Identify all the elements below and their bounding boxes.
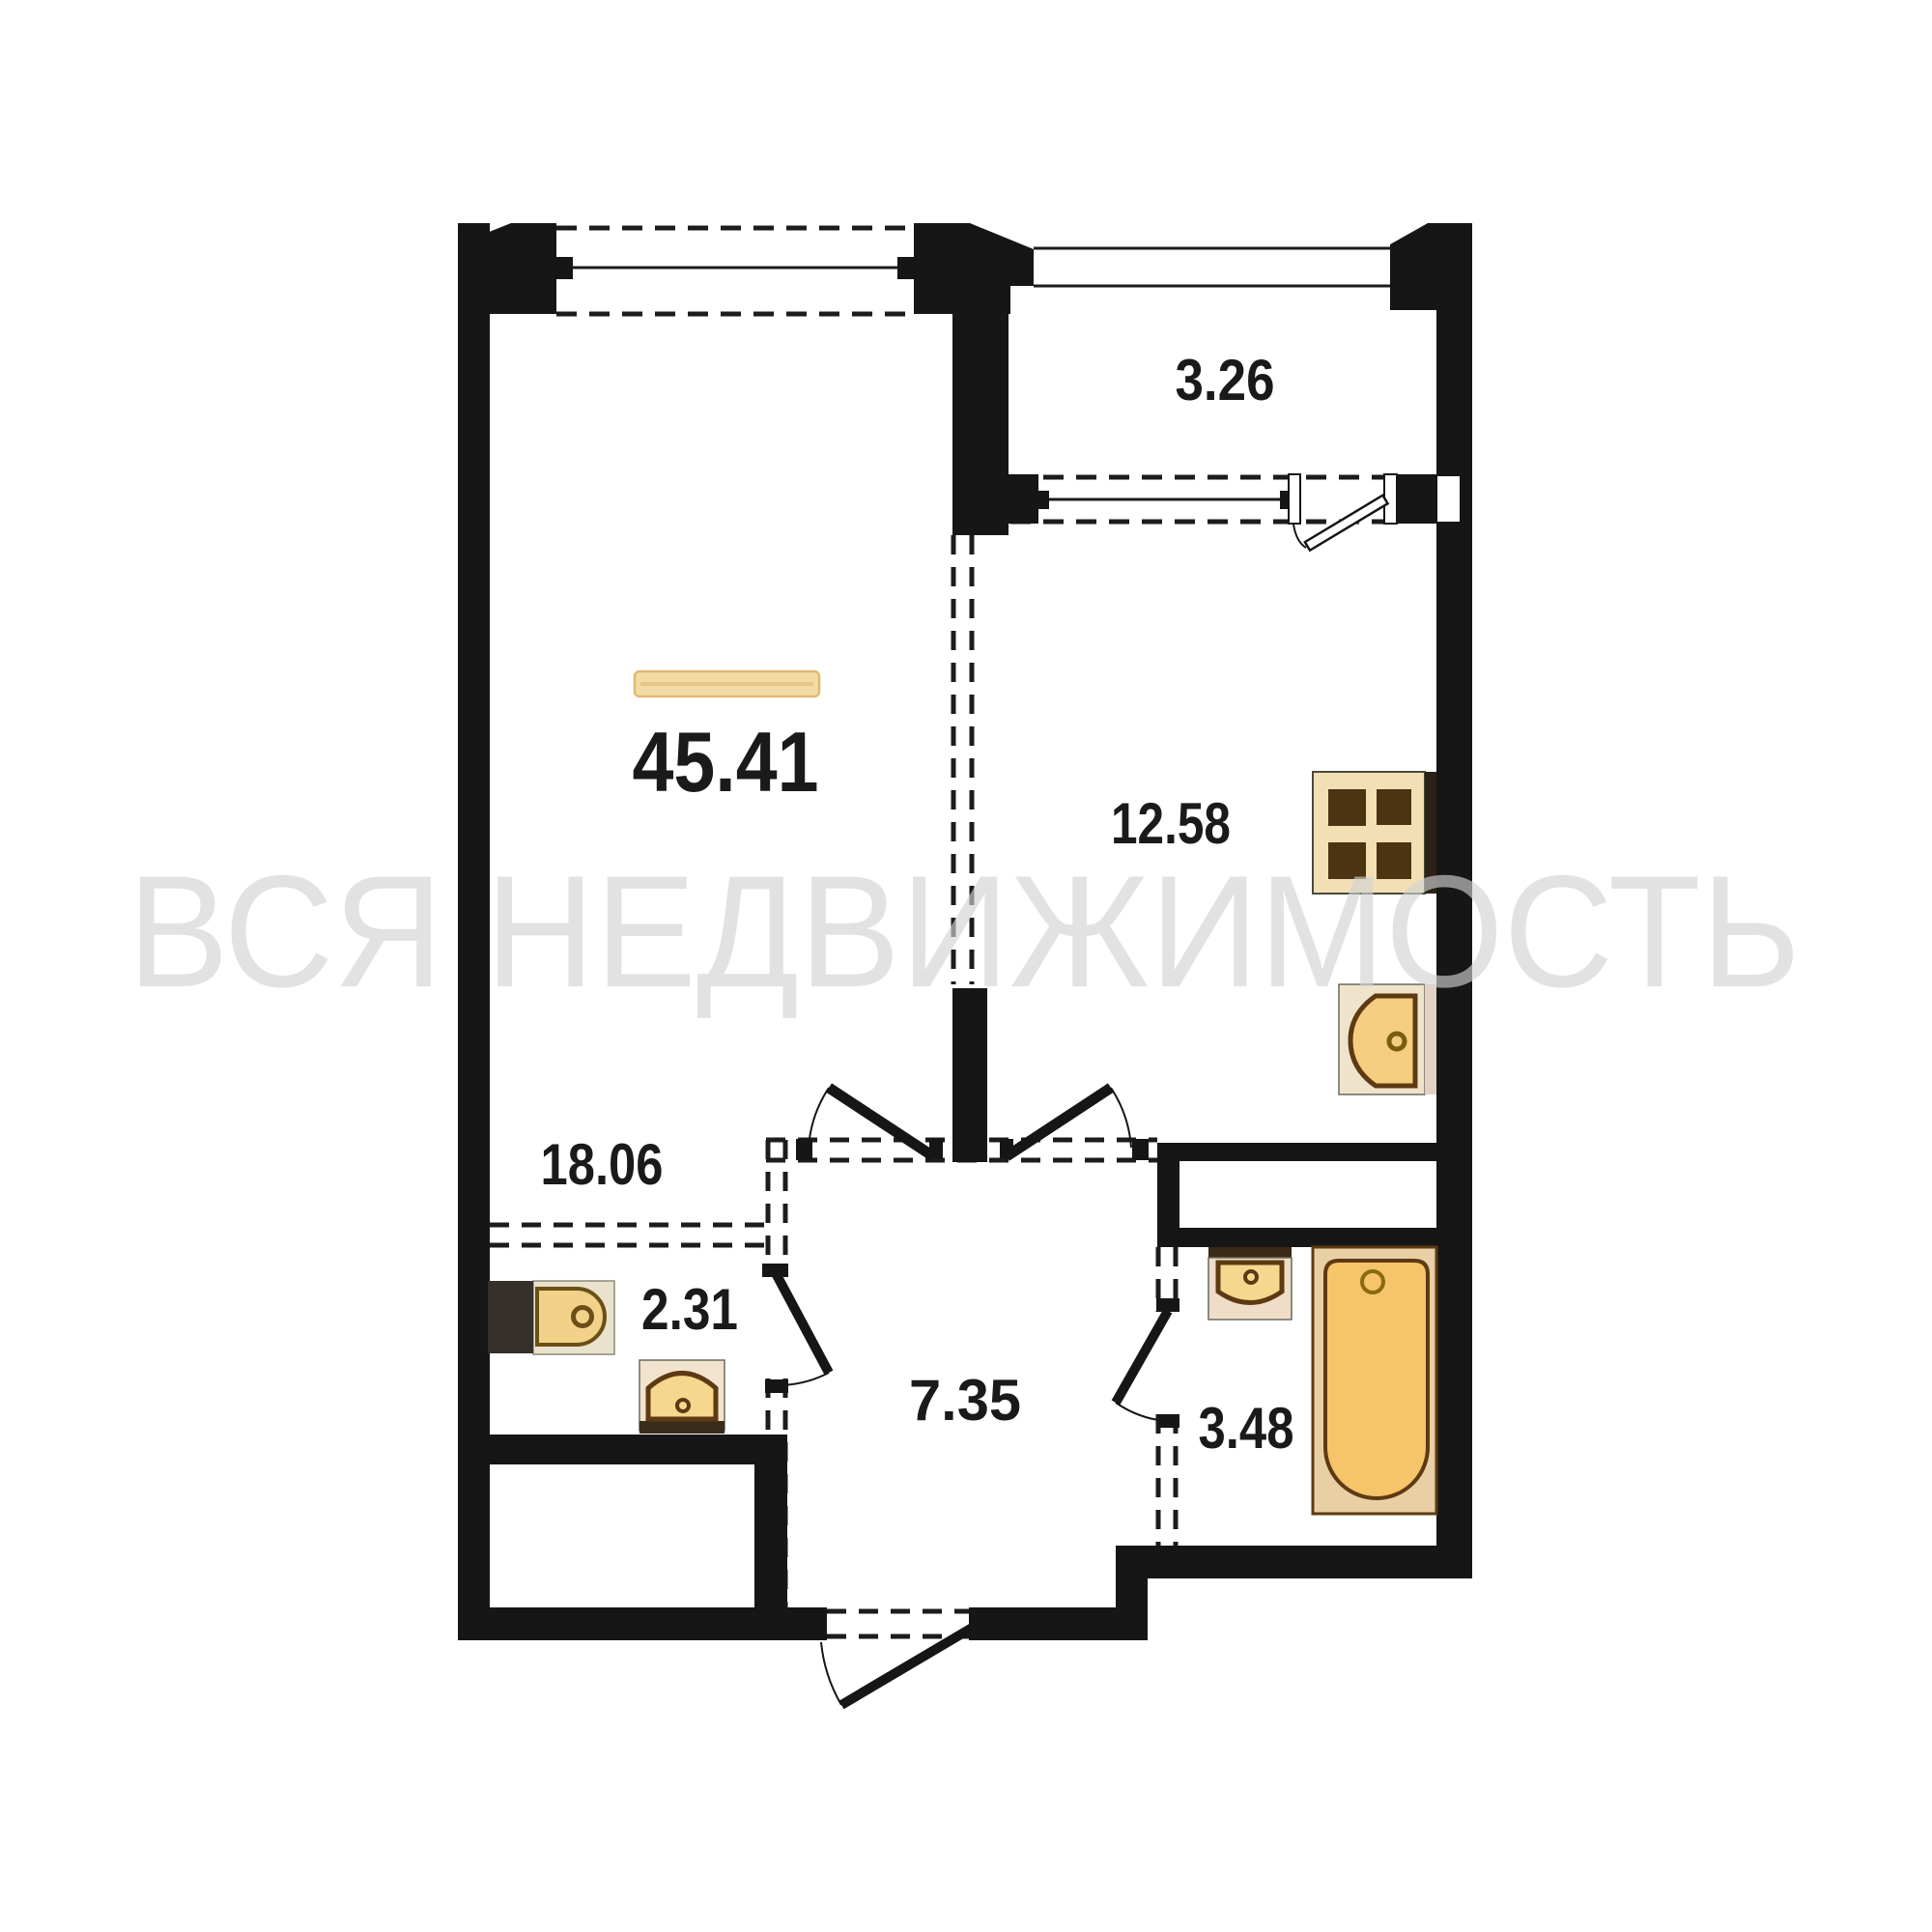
svg-text:18.06: 18.06 [541, 1132, 664, 1197]
svg-text:ВСЯ НЕДВИЖИМОСТЬ: ВСЯ НЕДВИЖИМОСТЬ [128, 842, 1801, 1020]
svg-text:3.26: 3.26 [1176, 348, 1275, 412]
svg-text:2.31: 2.31 [641, 1277, 738, 1342]
svg-text:45.41: 45.41 [633, 714, 819, 810]
svg-text:7.35: 7.35 [909, 1368, 1021, 1433]
svg-text:3.48: 3.48 [1199, 1396, 1294, 1461]
